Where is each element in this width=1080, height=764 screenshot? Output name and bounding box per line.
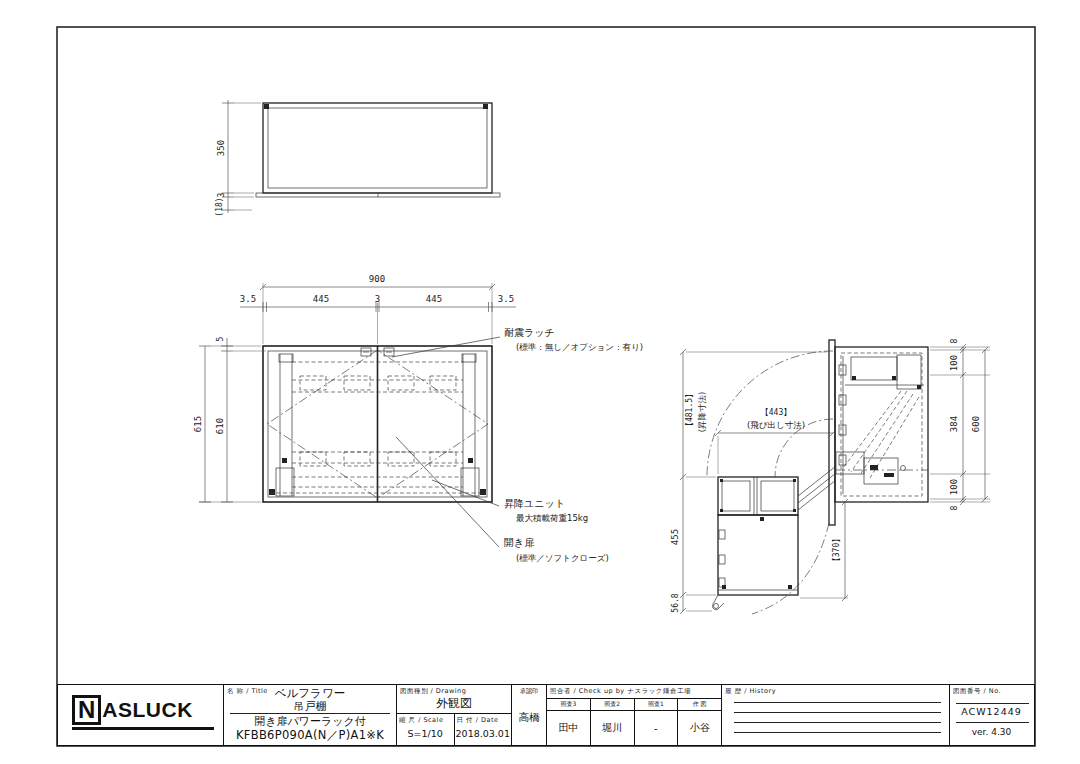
logo-letter-n: N — [72, 695, 101, 725]
dim-top-18: (18) — [215, 197, 224, 216]
product-name-line3: 開き扉パワーラック付 — [224, 714, 396, 729]
drawing-canvas: 350 3 (18) — [0, 0, 1080, 764]
approval-name: 高橋 — [512, 711, 546, 725]
dim-side-455: 455 — [670, 529, 680, 545]
dim-side-8-bottom: 8 — [950, 505, 959, 510]
top-view: 350 3 (18) — [215, 100, 500, 217]
dim-side-481-5-sub: (昇降寸法) — [697, 392, 707, 433]
check-col-1: 照査1 - — [634, 699, 678, 745]
logo-underline — [72, 727, 214, 730]
dim-front-5: 5 — [216, 336, 225, 341]
title-cell: 名 称 / Title ベルフラワー 吊戸棚 開き扉パワーラック付 KFBB6P… — [223, 685, 396, 745]
check-col-draw: 作 図 小谷 — [677, 699, 721, 745]
drawing-sheet: 350 3 (18) — [0, 0, 1080, 764]
note-lift-unit: 昇降ユニット — [504, 498, 565, 509]
dim-front-445-left: 445 — [313, 294, 329, 304]
dim-side-443: 【443】 — [761, 408, 791, 417]
product-code: KFBB6P090A(N／P)A1※K — [224, 728, 396, 743]
approval-label: 承認印 — [512, 687, 546, 696]
history-line-4 — [734, 732, 941, 733]
product-name-line2: 吊戸棚 — [224, 699, 396, 714]
check-col-3-header: 照査3 — [547, 699, 590, 711]
check-col-1-name: - — [635, 711, 678, 745]
check-col-3-name: 田中 — [547, 711, 590, 745]
dim-side-100-top: 100 — [949, 355, 959, 371]
date-label: 日 付 / Date — [457, 716, 499, 725]
note-door-sub: (標準／ソフトクローズ) — [516, 553, 609, 563]
check-label: 照合者 / Check up by ナスラック鎌倉工場 — [550, 687, 691, 696]
dim-front-610: 610 — [215, 418, 225, 434]
drawing-type-cell: 図面種別 / Drawing 外観図 縮 尺 / Scale S=1/10 日 … — [396, 685, 511, 745]
check-col-1-header: 照査1 — [635, 699, 678, 711]
date-cell: 日 付 / Date 2018.03.01 — [454, 714, 512, 745]
dim-front-3-5-right: 3.5 — [498, 294, 514, 304]
history-label: 履 歴 / History — [725, 687, 776, 696]
title-block: N ASLUCK 名 称 / Title ベルフラワー 吊戸棚 開き扉パワーラッ… — [57, 684, 1035, 746]
check-col-2-header: 照査2 — [591, 699, 634, 711]
history-line-1 — [734, 702, 941, 703]
dim-front-3: 3 — [375, 294, 380, 304]
scale-cell: 縮 尺 / Scale S=1/10 — [397, 714, 454, 745]
dim-side-100-bottom: 100 — [949, 479, 959, 495]
dim-front-445-right: 445 — [426, 294, 442, 304]
note-latch: 耐震ラッチ — [504, 327, 555, 338]
note-hinged-door: 開き扉 — [504, 537, 534, 548]
note-latch-sub: (標準：無し／オプション：有り) — [516, 342, 643, 352]
scale-label: 縮 尺 / Scale — [399, 716, 443, 725]
dim-side-443-sub: (飛び出し寸法) — [747, 420, 805, 430]
drawing-number: ACW12449 — [950, 706, 1033, 717]
dim-side-370: 【370】 — [832, 535, 841, 565]
check-col-2: 照査2 堀川 — [590, 699, 634, 745]
history-line-3 — [734, 722, 941, 723]
logo-cell: N ASLUCK — [58, 685, 223, 745]
nasluck-logo: N ASLUCK — [72, 695, 222, 730]
history-line-2 — [734, 712, 941, 713]
check-cell: 照合者 / Check up by ナスラック鎌倉工場 照査3 田中 照査2 堀… — [546, 685, 721, 745]
drawing-type: 外観図 — [397, 695, 511, 712]
logo-text: ASLUCK — [102, 698, 193, 722]
check-col-draw-header: 作 図 — [678, 699, 721, 711]
dim-front-900: 900 — [369, 274, 385, 284]
front-view: 900 3.5 445 3 445 3.5 5 615 610 耐震ラッチ (標 — [193, 274, 643, 563]
note-lift-load: 最大積載荷重15kg — [516, 513, 588, 523]
dim-top-350: 350 — [216, 140, 226, 156]
dim-front-615: 615 — [193, 416, 203, 432]
no-divider-top — [956, 703, 1029, 704]
history-cell: 履 歴 / History — [721, 685, 949, 745]
scale-value: S=1/10 — [397, 728, 454, 739]
dim-front-3-5-left: 3.5 — [240, 294, 256, 304]
dim-side-481-5: 【481.5】 — [685, 390, 694, 430]
date-value: 2018.03.01 — [455, 728, 512, 739]
version: ver. 4.30 — [950, 727, 1033, 737]
dim-side-56-8: 56.8 — [671, 593, 680, 612]
side-view: 【481.5】 (昇降寸法) 455 56.8 【443】 (飛び出し寸法) 【… — [670, 338, 990, 614]
dim-side-600: 600 — [971, 416, 981, 432]
no-divider-bottom — [956, 722, 1029, 723]
drawing-no-label: 図面番号 / No. — [953, 687, 1001, 696]
drawing-no-cell: 図面番号 / No. ACW12449 ver. 4.30 — [949, 685, 1033, 745]
sheet-frame — [57, 27, 1035, 746]
approval-cell: 承認印 高橋 — [511, 685, 546, 745]
dim-side-384: 384 — [949, 416, 959, 432]
dim-top-3: 3 — [217, 192, 226, 197]
check-col-2-name: 堀川 — [591, 711, 634, 745]
check-col-draw-name: 小谷 — [678, 711, 721, 745]
check-col-3: 照査3 田中 — [547, 699, 590, 745]
dim-side-8-top: 8 — [950, 338, 959, 343]
